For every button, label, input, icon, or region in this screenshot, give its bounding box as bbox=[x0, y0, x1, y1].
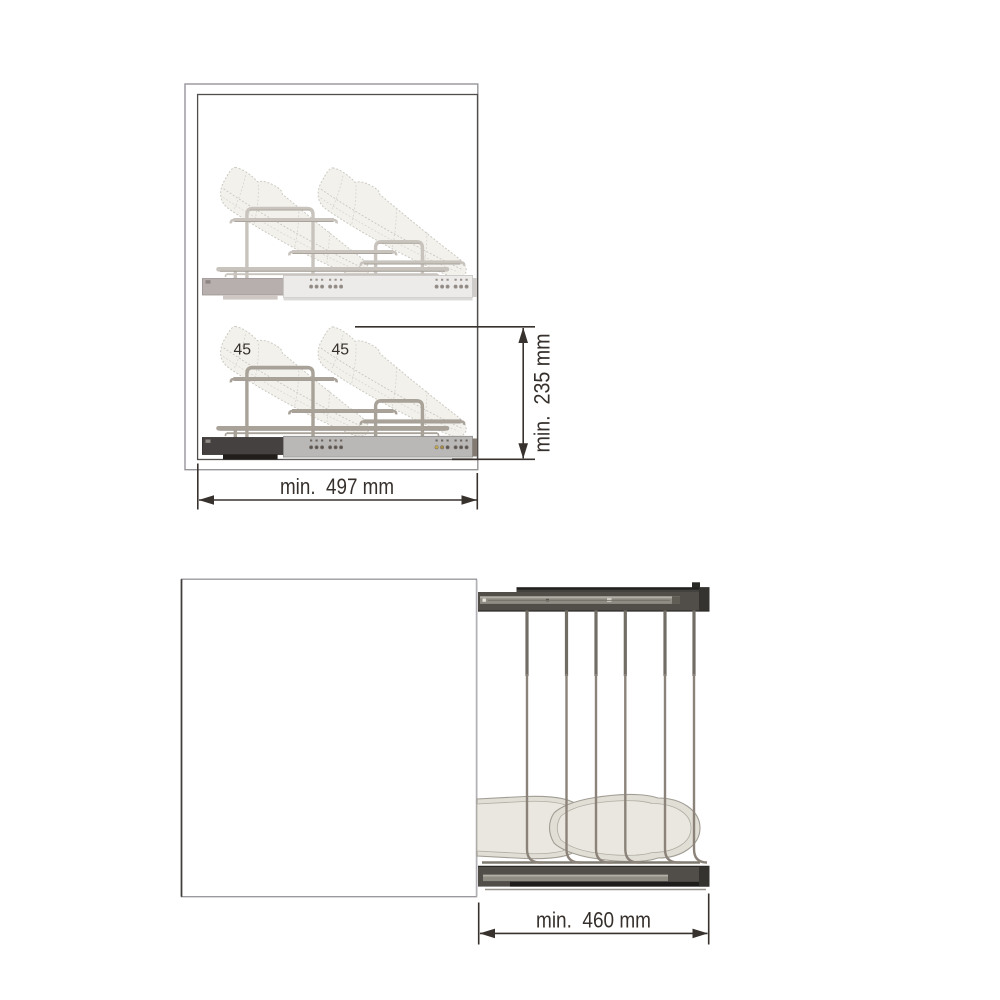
svg-text:45: 45 bbox=[332, 341, 350, 358]
svg-text:min. 235 mm: min. 235 mm bbox=[530, 334, 555, 453]
svg-text:45: 45 bbox=[234, 341, 252, 358]
svg-text:min. 460 mm: min. 460 mm bbox=[536, 908, 651, 933]
svg-text:min. 497 mm: min. 497 mm bbox=[280, 474, 394, 499]
